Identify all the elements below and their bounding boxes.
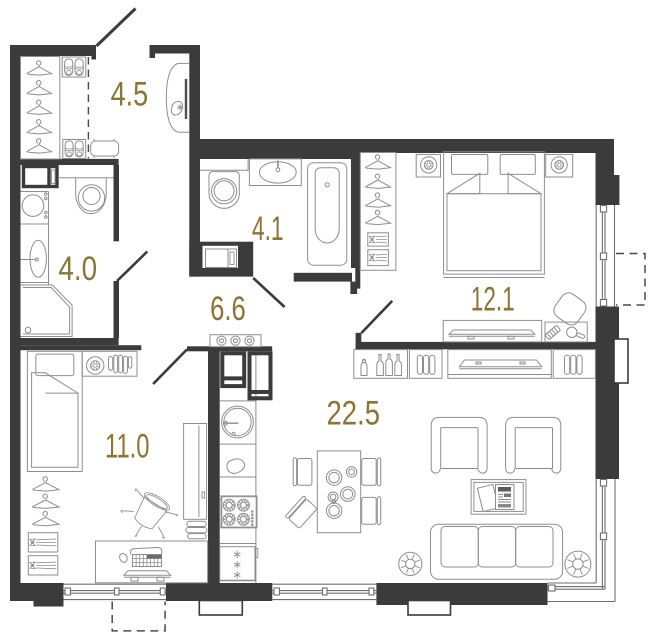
svg-text:22.5: 22.5 [327, 394, 381, 432]
svg-text:6.6: 6.6 [210, 290, 246, 328]
svg-text:4.0: 4.0 [58, 250, 97, 288]
svg-text:4.1: 4.1 [252, 210, 284, 248]
svg-text:12.1: 12.1 [471, 280, 515, 318]
svg-text:4.5: 4.5 [111, 76, 149, 114]
svg-text:11.0: 11.0 [105, 428, 150, 466]
